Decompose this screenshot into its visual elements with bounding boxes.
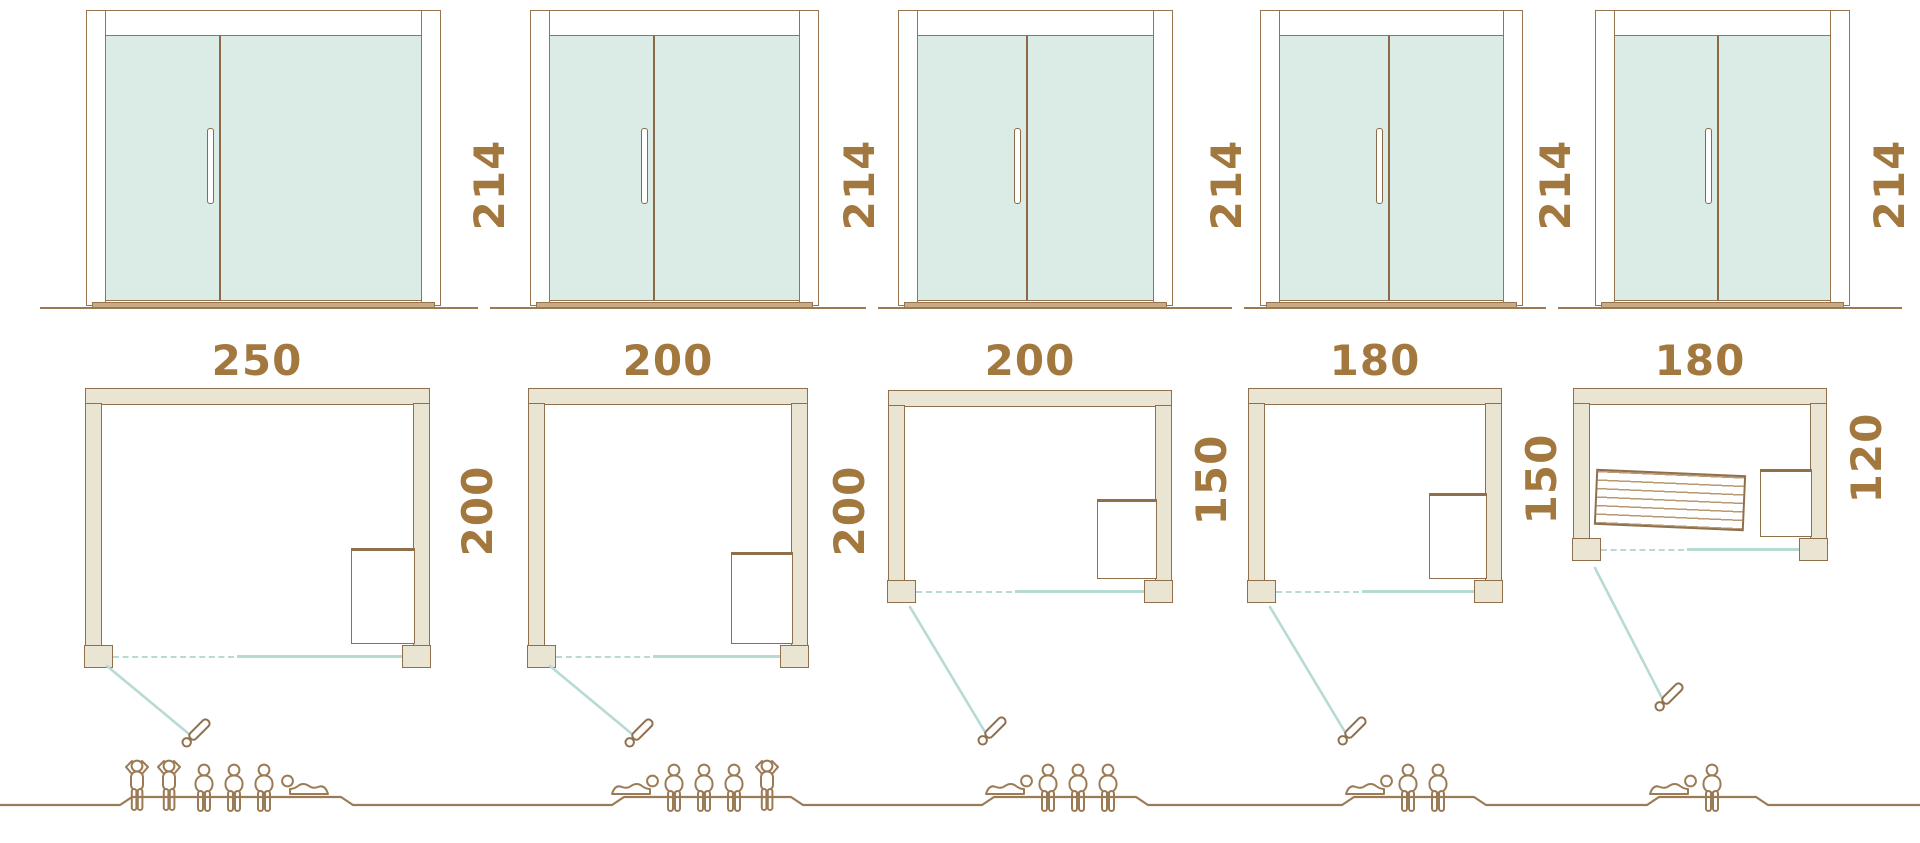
ground-line-segment [878,307,1232,309]
door-glass [1614,35,1831,301]
door-height-label: 214 [838,130,882,240]
plan-wall-left [1573,403,1590,558]
door-swing-leaf-icon [977,716,1007,746]
door-glass-divider [653,35,655,301]
door-handle-icon [1705,128,1712,204]
door-frame-left-post [1260,10,1280,306]
front-glass-dashed-line [916,591,1012,593]
front-glass-dashed-line [1276,591,1359,593]
floor-plan [1248,388,1502,600]
front-glass-dashed-line [556,656,650,658]
ground-line [0,778,1920,843]
door-swing [1258,600,1388,750]
door-lintel [103,10,424,37]
heater [1429,493,1487,579]
door-elevation [1260,10,1523,306]
ground-line-segment [1558,307,1902,309]
front-glass-line [237,655,402,658]
door-glass [105,35,422,301]
heater-core-icon [1761,470,1811,472]
door-height-label: 214 [1205,130,1249,240]
plan-width-label: 250 [177,339,337,383]
door-swing-leaf-icon [1654,682,1684,712]
ground-line-segment [40,307,478,309]
plan-width-label: 200 [588,339,748,383]
floor-plan [85,388,430,665]
plan-wall-left [85,403,102,665]
front-glass-line [653,655,780,658]
plan-corner-post-right [1799,538,1828,561]
plan-corner-post-right [402,645,431,668]
door-lintel [547,10,802,37]
plan-wall-top [1573,388,1827,405]
door-handle-icon [641,128,648,204]
plan-corner-post-right [1474,580,1503,603]
door-glass [549,35,800,301]
door-elevation [898,10,1173,306]
front-glass-dashed-line [1601,549,1684,551]
plan-wall-top [85,388,430,405]
plan-depth-label: 120 [1845,388,1889,528]
plan-width-label: 180 [1620,339,1780,383]
door-glass-divider [1026,35,1028,301]
door-lintel [1277,10,1506,37]
heater-core-icon [1098,500,1156,502]
heater-core-icon [1430,494,1486,496]
ground-line-segment [490,307,866,309]
floor-plan [528,388,808,665]
door-height-label: 214 [1534,130,1578,240]
front-glass-dashed-line [113,656,234,658]
plan-width-label: 200 [950,339,1110,383]
door-handle-icon [1014,128,1021,204]
door-swing [1582,560,1702,715]
door-frame-right-post [1503,10,1523,306]
door-elevation [530,10,819,306]
plan-wall-right [1155,405,1172,600]
plan-corner-post-right [1144,580,1173,603]
door-frame-right-post [799,10,819,306]
plan-wall-right [1810,403,1827,558]
door-lintel [1612,10,1833,37]
sauna-size-diagram: 214 250 200 [0,0,1920,843]
plan-wall-top [1248,388,1502,405]
door-swing-leaf-icon [624,718,654,748]
floor-plan [1573,388,1827,558]
front-glass-line [1362,590,1474,593]
door-frame-left-post [898,10,918,306]
door-frame-right-post [1830,10,1850,306]
plan-depth-label: 150 [1190,410,1234,550]
door-height-label: 214 [1868,130,1912,240]
door-frame-left-post [530,10,550,306]
door-glass-divider [1717,35,1719,301]
plan-depth-label: 150 [1520,409,1564,549]
door-handle-icon [207,128,214,204]
plan-wall-left [1248,403,1265,600]
door-handle-icon [1376,128,1383,204]
door-frame-right-post [421,10,441,306]
plan-wall-right [1485,403,1502,600]
plan-depth-label: 200 [456,441,500,581]
plan-width-label: 180 [1295,339,1455,383]
door-height-label: 214 [468,130,512,240]
door-glass [1279,35,1504,301]
door-lintel [915,10,1156,37]
front-glass-line [1015,590,1144,593]
door-frame-right-post [1153,10,1173,306]
door-swing-leaf-icon [181,718,211,748]
plan-corner-post-left [1572,538,1601,561]
plan-wall-right [791,403,808,665]
heater-core-icon [732,553,792,555]
door-elevation [86,10,441,306]
heater [351,548,415,644]
plan-corner-post-right [780,645,809,668]
plan-wall-left [888,405,905,600]
heater-core-icon [352,549,414,551]
plan-wall-top [888,390,1172,407]
ground-line-segment [1244,307,1546,309]
front-glass-line [1687,548,1799,551]
plan-wall-left [528,403,545,665]
plan-depth-label: 200 [828,441,872,581]
door-frame-left-post [1595,10,1615,306]
plan-wall-top [528,388,808,405]
door-frame-left-post [86,10,106,306]
heater [731,552,793,644]
door-glass-divider [219,35,221,301]
floor-plan [888,390,1172,600]
heater [1760,469,1812,537]
heater [1097,499,1157,579]
door-glass [917,35,1154,301]
door-elevation [1595,10,1850,306]
door-swing-leaf-icon [1337,716,1367,746]
plan-wall-right [413,403,430,665]
door-glass-divider [1388,35,1390,301]
door-swing [898,600,1028,750]
tilted-bench [1594,469,1746,531]
